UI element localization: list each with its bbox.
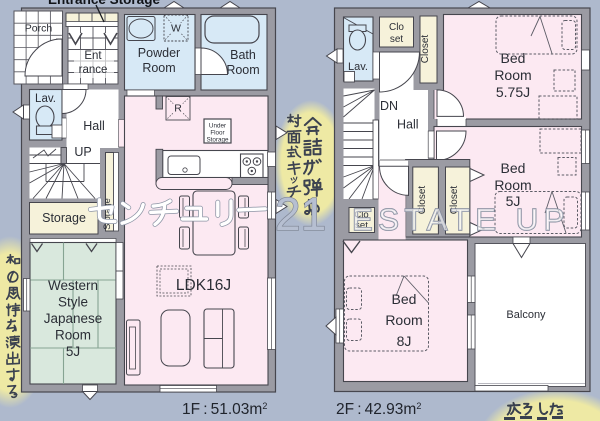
svg-text:Room: Room: [55, 328, 91, 343]
svg-text:Room: Room: [226, 63, 259, 77]
svg-text:R: R: [174, 103, 182, 115]
svg-text:Japanese: Japanese: [44, 311, 103, 326]
svg-text:1F : 51.03m2: 1F : 51.03m2: [182, 401, 267, 418]
svg-text:Hall: Hall: [83, 119, 105, 133]
svg-text:Entrance Storage: Entrance Storage: [48, 0, 160, 7]
svg-text:Room: Room: [385, 312, 422, 328]
svg-text:5J: 5J: [66, 344, 80, 359]
svg-text:UP: UP: [74, 145, 91, 159]
svg-text:Room: Room: [494, 67, 531, 83]
svg-text:Hall: Hall: [397, 118, 419, 132]
svg-text:Room: Room: [494, 177, 531, 193]
svg-text:Storage: Storage: [206, 137, 229, 144]
svg-text:rance: rance: [79, 64, 108, 76]
svg-text:Closet: Closet: [420, 35, 431, 64]
svg-text:Room: Room: [142, 61, 175, 75]
svg-text:Clo: Clo: [389, 22, 404, 33]
svg-text:Style: Style: [58, 295, 88, 310]
svg-text:8J: 8J: [397, 333, 412, 349]
svg-text:Porch: Porch: [25, 23, 53, 35]
svg-text:ESTATE UP: ESTATE UP: [352, 203, 570, 237]
svg-text:5.75J: 5.75J: [496, 84, 530, 100]
svg-text:Storage: Storage: [42, 211, 86, 225]
svg-text:Balcony: Balcony: [506, 309, 546, 321]
svg-text:Bed: Bed: [392, 291, 417, 307]
svg-text:Lav.: Lav.: [35, 93, 56, 105]
svg-text:set: set: [390, 34, 404, 45]
svg-text:Ent: Ent: [84, 50, 102, 62]
svg-text:Bed: Bed: [501, 50, 526, 66]
svg-text:2F : 42.93m2: 2F : 42.93m2: [336, 401, 421, 418]
svg-text:Western: Western: [48, 278, 98, 293]
svg-text:Bed: Bed: [501, 160, 526, 176]
svg-text:W: W: [171, 23, 181, 35]
svg-text:DN: DN: [380, 99, 398, 113]
svg-text:Floor: Floor: [210, 130, 224, 137]
svg-text:Bath: Bath: [230, 48, 256, 62]
svg-text:LDK16J: LDK16J: [176, 277, 231, 294]
svg-text:Under: Under: [209, 123, 226, 130]
svg-text:Powder: Powder: [138, 46, 180, 60]
svg-text:21: 21: [275, 188, 326, 240]
